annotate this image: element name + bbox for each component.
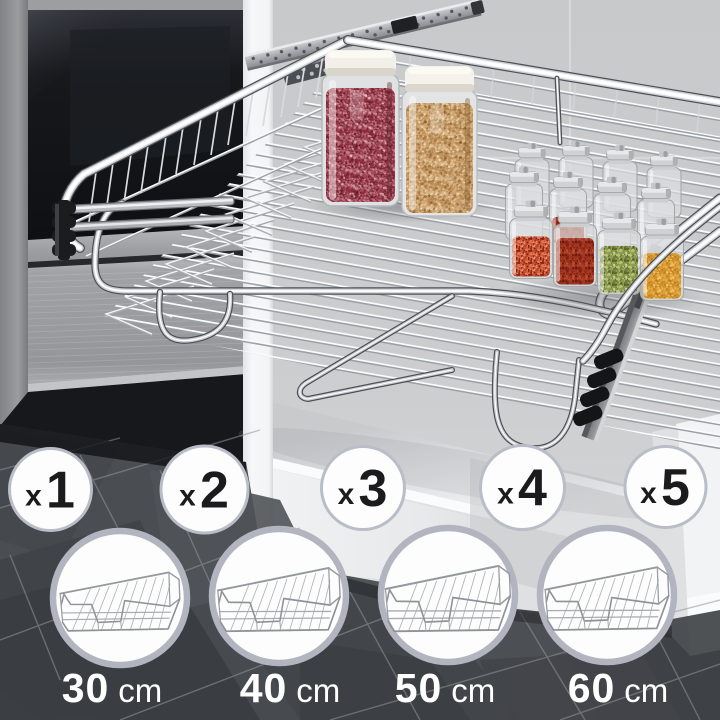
svg-text:x: x <box>640 477 657 510</box>
svg-text:x: x <box>179 480 196 513</box>
svg-text:4: 4 <box>518 460 547 518</box>
svg-text:1: 1 <box>46 462 75 520</box>
svg-text:x: x <box>497 478 514 511</box>
svg-text:x: x <box>338 478 355 511</box>
svg-text:x: x <box>25 480 42 513</box>
svg-text:5: 5 <box>661 459 690 517</box>
svg-text:2: 2 <box>200 462 229 520</box>
svg-text:3: 3 <box>359 460 388 518</box>
